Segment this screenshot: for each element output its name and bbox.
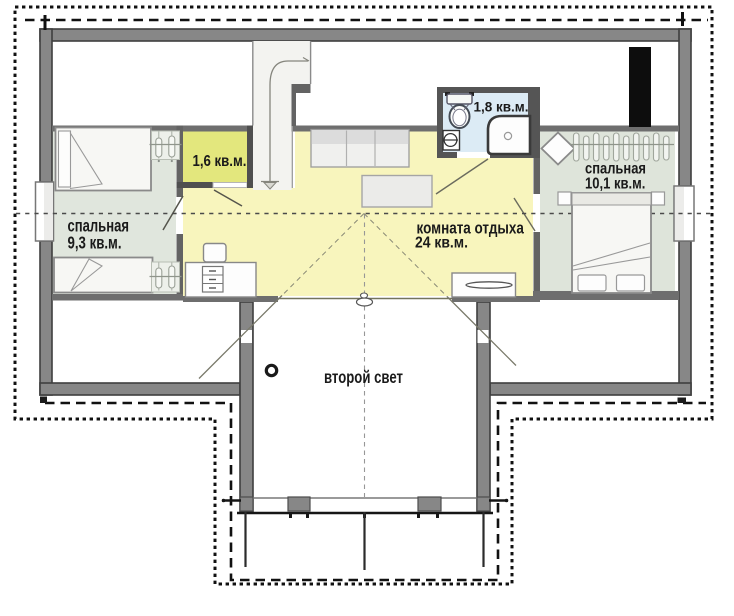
svg-text:9,3 кв.м.: 9,3 кв.м.: [68, 234, 122, 253]
svg-text:второй свет: второй свет: [324, 368, 403, 387]
svg-text:1,6 кв.м.: 1,6 кв.м.: [193, 153, 247, 170]
svg-text:24 кв.м.: 24 кв.м.: [415, 234, 468, 252]
svg-text:10,1 кв.м.: 10,1 кв.м.: [585, 176, 645, 193]
svg-text:1,8 кв.м.: 1,8 кв.м.: [474, 99, 529, 114]
